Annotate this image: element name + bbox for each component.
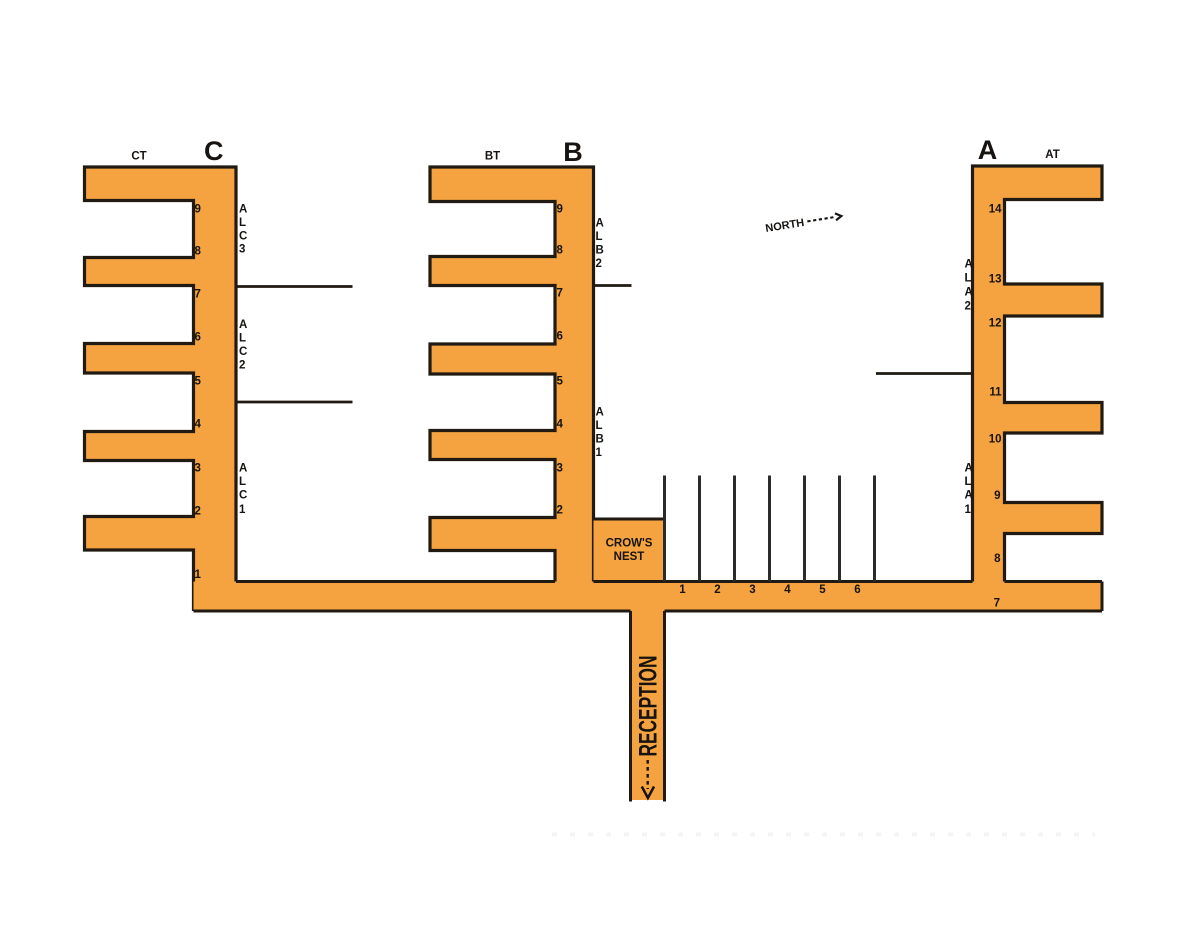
- svg-text:A: A: [239, 204, 247, 216]
- svg-text:CROW'S: CROW'S: [606, 538, 653, 550]
- svg-text:2: 2: [557, 505, 563, 517]
- svg-text:A: A: [965, 259, 973, 271]
- svg-text:C: C: [239, 346, 247, 358]
- svg-text:A: A: [239, 319, 247, 331]
- svg-text:A: A: [978, 135, 998, 165]
- svg-text:3: 3: [557, 463, 563, 475]
- svg-text:NEST: NEST: [614, 551, 645, 563]
- svg-text:6: 6: [854, 584, 860, 596]
- svg-text:L: L: [596, 420, 603, 432]
- svg-text:C: C: [239, 231, 247, 243]
- svg-text:A: A: [965, 463, 973, 475]
- svg-text:10: 10: [989, 434, 1002, 446]
- svg-text:1: 1: [239, 504, 246, 516]
- svg-text:L: L: [596, 231, 603, 243]
- svg-text:6: 6: [195, 332, 201, 344]
- svg-text:1: 1: [965, 504, 972, 516]
- svg-text:14: 14: [989, 204, 1002, 216]
- svg-text:4: 4: [557, 419, 564, 431]
- svg-text:9: 9: [195, 204, 201, 216]
- svg-text:9: 9: [557, 204, 563, 216]
- svg-text:C: C: [239, 490, 247, 502]
- svg-text:13: 13: [989, 274, 1002, 286]
- svg-text:2: 2: [596, 258, 602, 270]
- svg-text:9: 9: [994, 490, 1000, 502]
- svg-text:A: A: [596, 218, 604, 230]
- svg-text:5: 5: [195, 376, 202, 388]
- svg-text:L: L: [239, 217, 246, 229]
- svg-text:5: 5: [819, 584, 826, 596]
- svg-text:8: 8: [195, 246, 202, 258]
- svg-text:CT: CT: [131, 151, 146, 163]
- svg-text:12: 12: [989, 318, 1002, 330]
- svg-text:L: L: [239, 476, 246, 488]
- svg-text:A: A: [596, 407, 604, 419]
- svg-text:2: 2: [195, 506, 201, 518]
- svg-text:2: 2: [714, 584, 720, 596]
- svg-text:1: 1: [679, 584, 686, 596]
- svg-text:L: L: [239, 333, 246, 345]
- svg-text:6: 6: [557, 331, 563, 343]
- svg-text:3: 3: [239, 244, 245, 256]
- svg-text:8: 8: [994, 553, 1001, 565]
- svg-text:B: B: [563, 137, 583, 167]
- svg-text:L: L: [965, 476, 972, 488]
- svg-text:4: 4: [195, 419, 202, 431]
- svg-text:7: 7: [557, 288, 563, 300]
- svg-text:4: 4: [784, 584, 791, 596]
- svg-text:3: 3: [749, 584, 755, 596]
- svg-text:5: 5: [557, 376, 564, 388]
- svg-text:AT: AT: [1045, 149, 1059, 161]
- svg-text:1: 1: [596, 447, 603, 459]
- svg-text:2: 2: [965, 301, 971, 313]
- svg-text:2: 2: [239, 360, 245, 372]
- svg-text:RECEPTION: RECEPTION: [635, 656, 663, 757]
- svg-text:7: 7: [994, 598, 1000, 610]
- svg-text:L: L: [965, 273, 972, 285]
- svg-text:A: A: [965, 490, 973, 502]
- svg-text:7: 7: [195, 289, 201, 301]
- svg-text:A: A: [239, 463, 247, 475]
- svg-text:C: C: [204, 136, 224, 166]
- svg-text:3: 3: [195, 463, 201, 475]
- svg-text:BT: BT: [485, 151, 500, 163]
- svg-text:B: B: [596, 245, 604, 257]
- svg-text:B: B: [596, 434, 604, 446]
- svg-text:11: 11: [989, 387, 1002, 399]
- svg-text:A: A: [965, 287, 973, 299]
- svg-text:1: 1: [195, 569, 202, 581]
- svg-text:8: 8: [557, 245, 564, 257]
